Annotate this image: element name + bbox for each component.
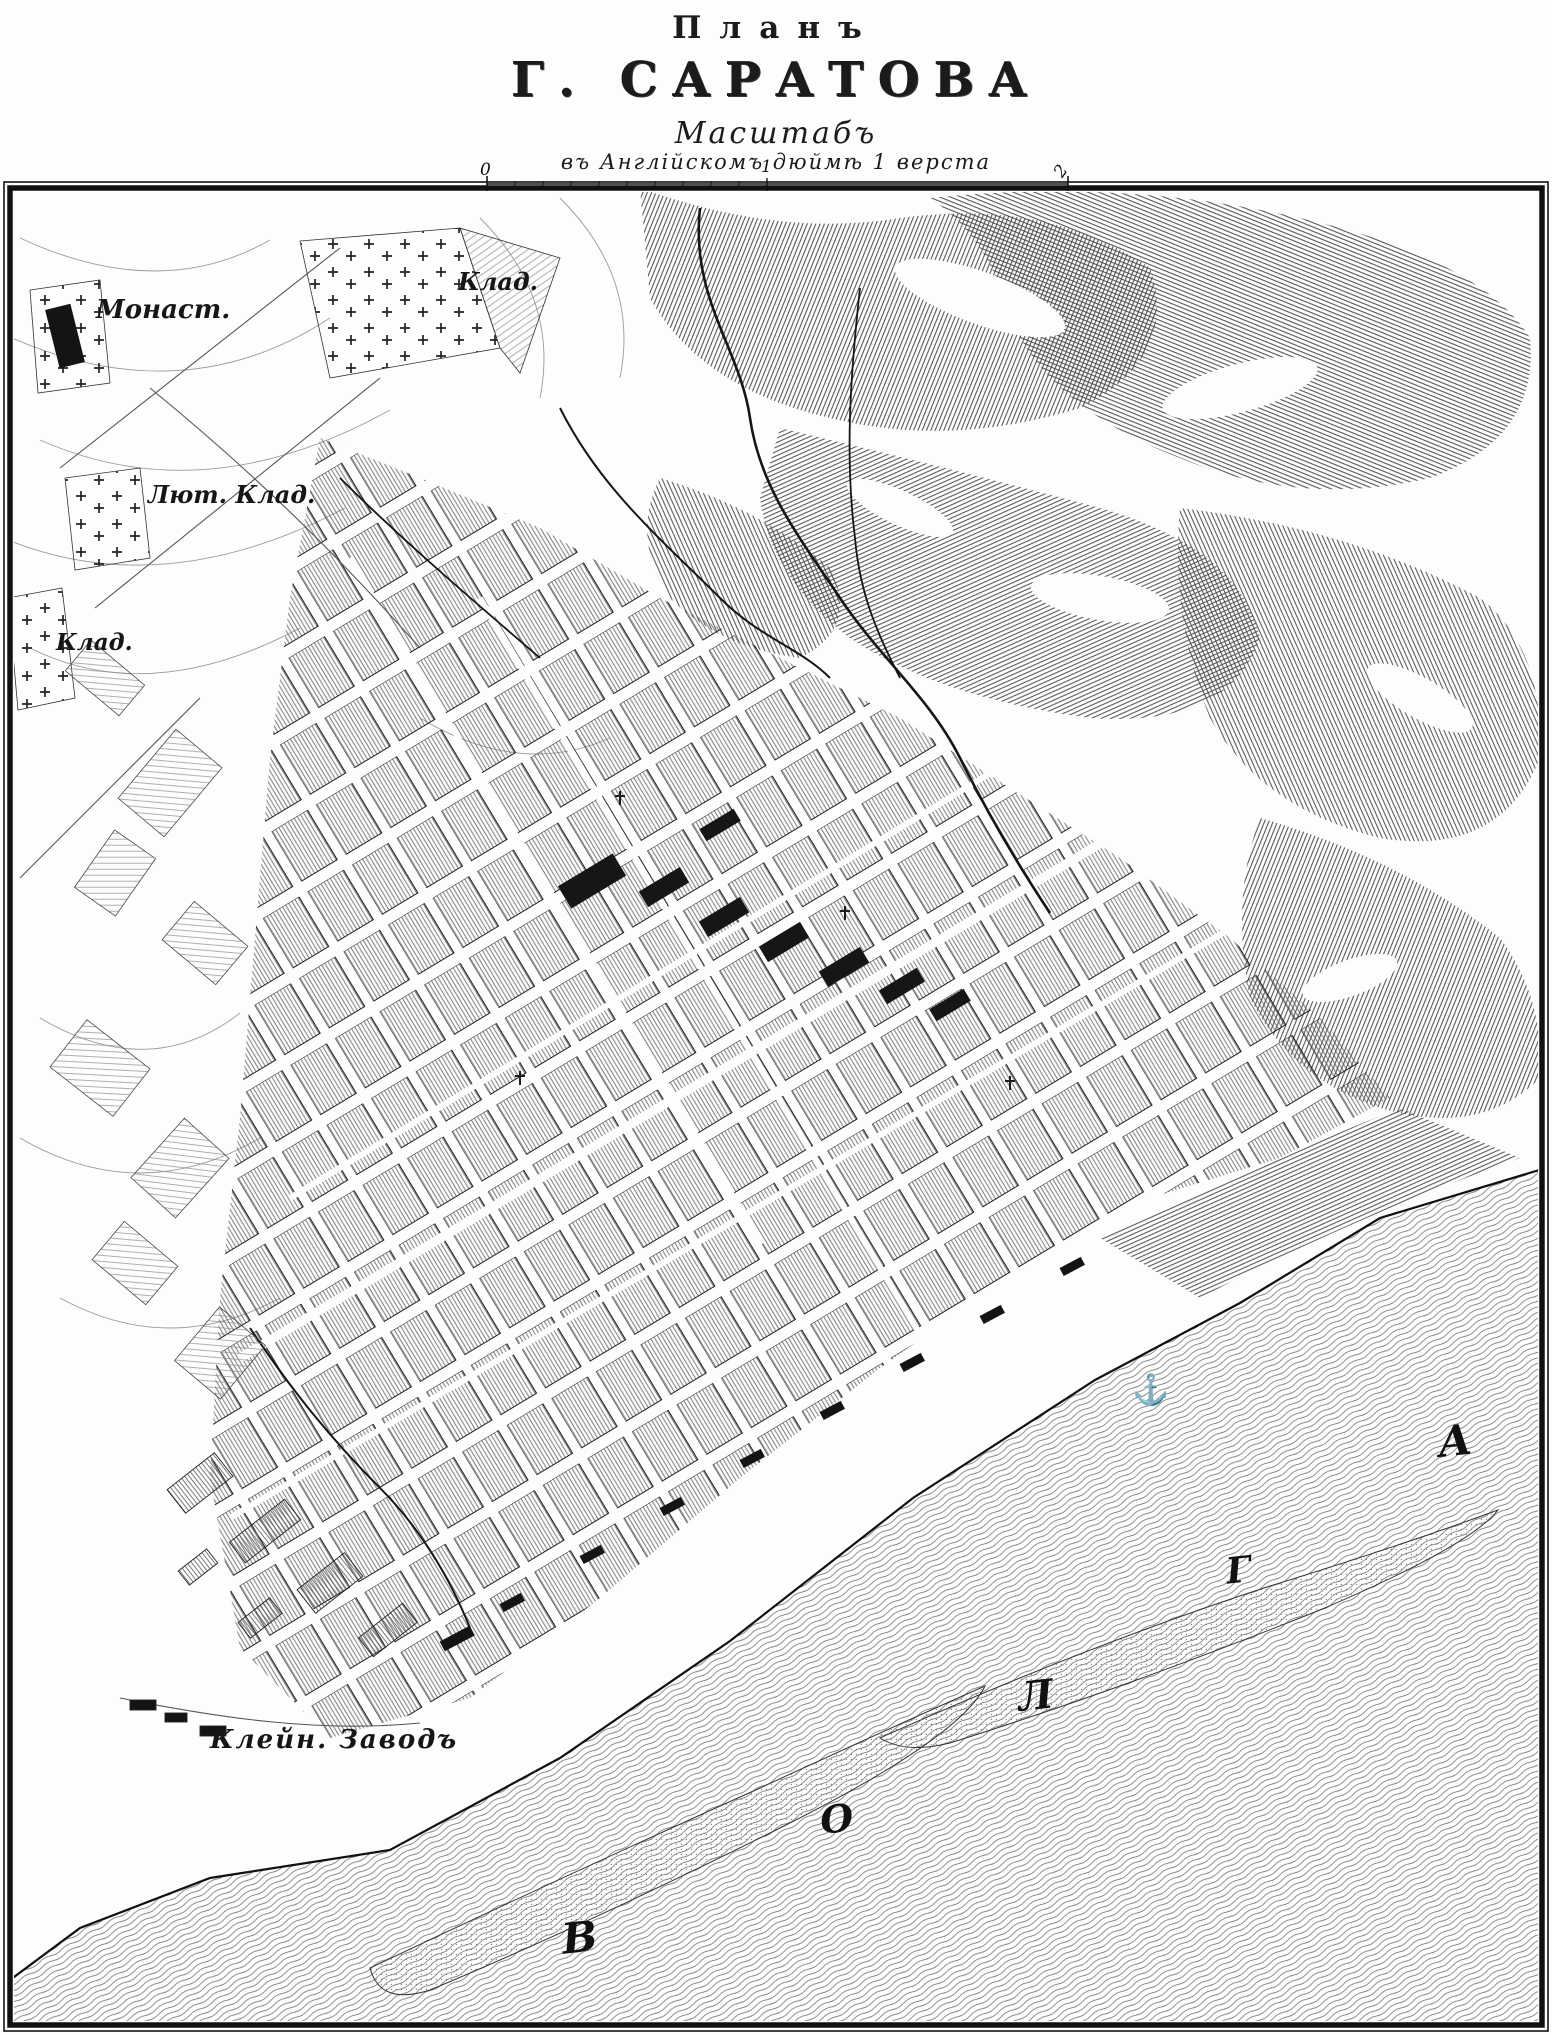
river-letter-l: Л [1014,1670,1058,1721]
scale-start-label: 0 [480,160,491,180]
city-map-engraving: Монаст. Клад. Лют. Клад. Клад. Клейн. За… [0,178,1552,2035]
scale-middle-label: 1 [761,157,772,177]
anchor-icon: ⚓ [1132,1372,1169,1408]
river-letter-a: А [1432,1415,1474,1468]
label-cemetery-left: Клад. [55,629,133,656]
label-lutheran-cemetery: Лют. Клад. [146,480,315,509]
label-cemetery-top: Клад. [457,267,538,296]
map-content: Монаст. Клад. Лют. Клад. Клад. Клейн. За… [6,188,1546,2027]
label-factory: Клейн. Заводъ [209,1725,458,1755]
river-letter-v: В [558,1911,599,1964]
scale-bar: 0 1 2 [0,0,1552,200]
label-monastery: Монаст. [95,295,230,325]
river-letter-o: О [818,1794,856,1842]
scanned-map-page: Планъ Г. САРАТОВА Масштабъ въ Англійском… [0,0,1552,2035]
